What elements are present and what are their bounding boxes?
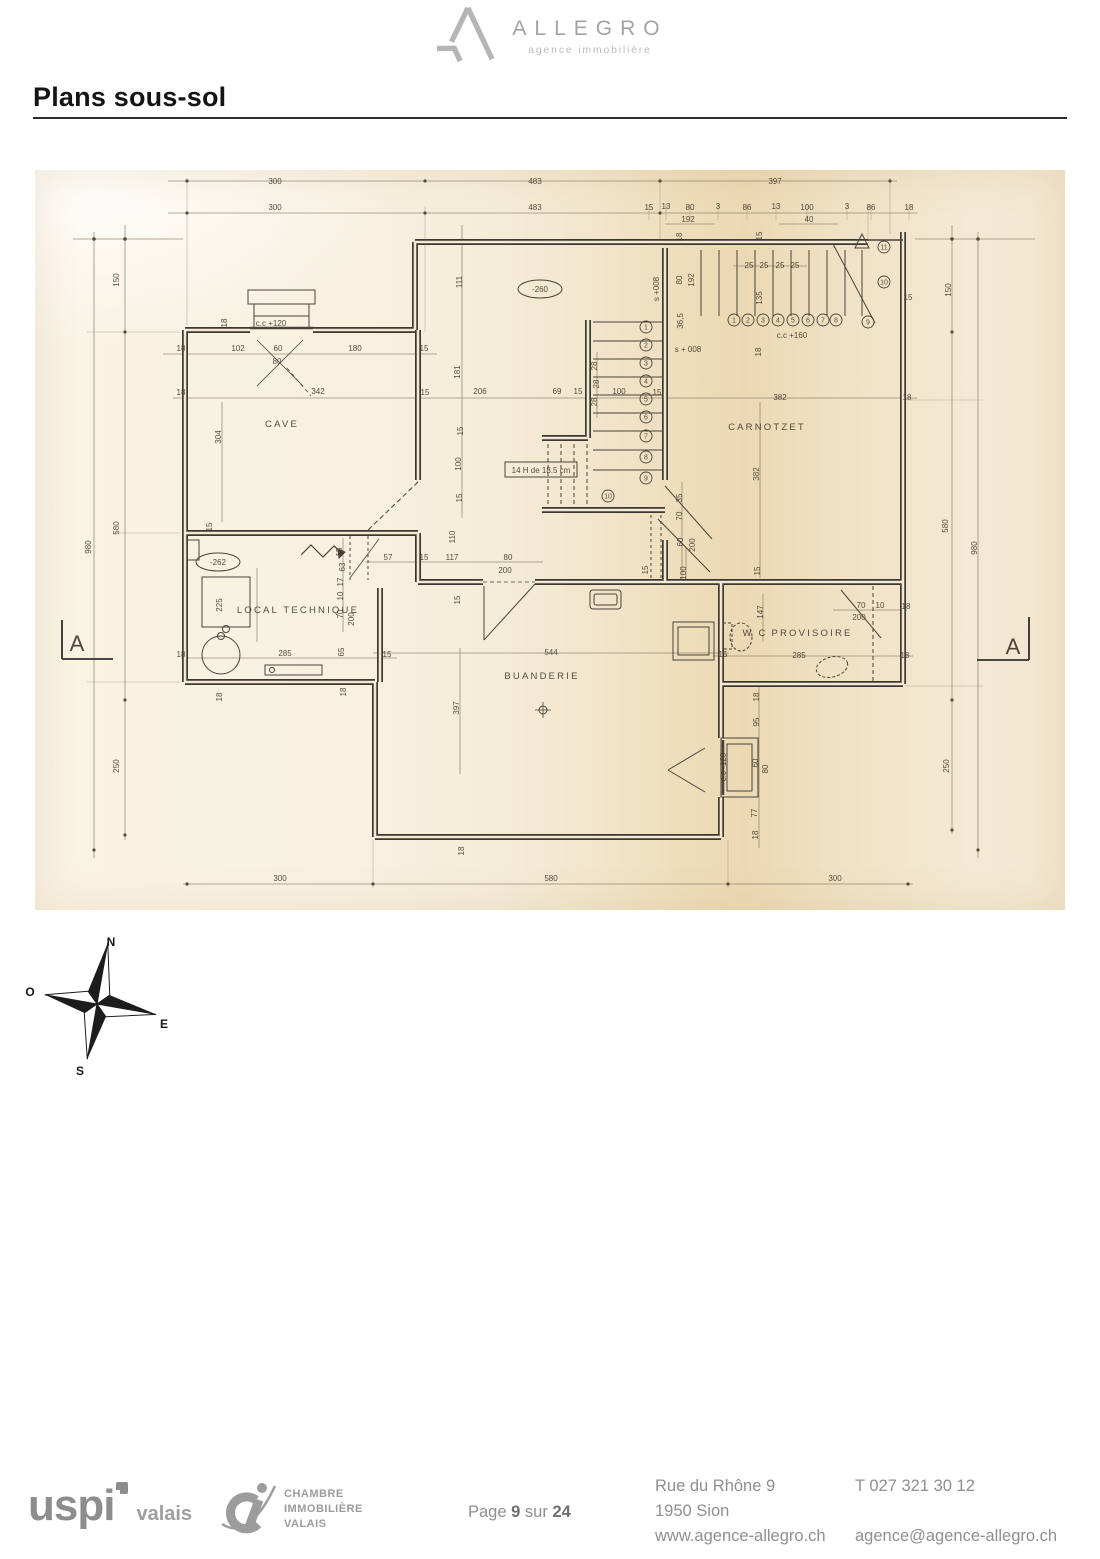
dimension-label: 100 xyxy=(800,203,814,212)
dimension-label: 285 xyxy=(278,649,292,658)
dimension-label: 10 xyxy=(336,591,345,600)
level-label: -262 xyxy=(210,558,227,567)
dimension-label: 80 xyxy=(686,203,695,212)
dimension-label: 15 xyxy=(456,426,465,435)
dimension-label: 100 xyxy=(679,566,688,580)
address-line: 1950 Sion xyxy=(655,1499,826,1524)
dimension-label: 28 xyxy=(590,361,599,370)
compass-rose: N E S O xyxy=(22,932,172,1082)
dimension-label: 15 xyxy=(653,388,662,397)
dimension-label: 15 xyxy=(641,565,650,574)
website-link[interactable]: www.agence-allegro.ch xyxy=(655,1524,826,1549)
room-label: CAVE xyxy=(265,419,299,430)
room-label: LOCAL TECHNIQUE xyxy=(237,605,359,616)
step-number: 2 xyxy=(644,343,648,350)
dimension-label: 80 xyxy=(504,553,513,562)
dimension-label: 18 xyxy=(339,687,348,696)
floor-plan: 3004833973004831513803861310038618192401… xyxy=(35,170,1065,910)
dimension-label: 100 xyxy=(454,457,463,471)
dimension-label: 342 xyxy=(311,387,325,396)
dimension-label: s + 008 xyxy=(675,345,702,354)
section-marker: A xyxy=(70,631,85,656)
dimension-label: 18 xyxy=(457,846,466,855)
step-number: 6 xyxy=(644,415,648,422)
step-number: 10 xyxy=(604,494,612,501)
dimension-label: 18 xyxy=(752,692,761,701)
dimension-label: 18 xyxy=(215,692,224,701)
dimension-label: 15 xyxy=(904,293,913,302)
walls xyxy=(185,232,903,837)
compass-west-label: O xyxy=(25,985,34,999)
dimension-label: 580 xyxy=(941,519,950,533)
dimension-label: 35 xyxy=(675,493,684,502)
dimension-label: 15 xyxy=(755,231,764,240)
dimension-label: 15 xyxy=(753,566,762,575)
dimension-label: 102 xyxy=(231,344,245,353)
dimension-label: 250 xyxy=(112,759,121,773)
floor-plan-scan: 3004833973004831513803861310038618192401… xyxy=(35,170,1065,910)
dimension-label: 397 xyxy=(768,177,782,186)
dimension-label: 25 xyxy=(791,261,800,270)
dimension-label: 18 xyxy=(901,651,910,660)
dimension-label: 382 xyxy=(752,467,761,481)
dimension-label: 200 xyxy=(498,566,512,575)
dimension-label: 150 xyxy=(944,283,953,297)
section-marker: A xyxy=(1006,634,1021,659)
uspi-valais-logo: uspi valais xyxy=(28,1484,192,1528)
dimension-label: 25 xyxy=(760,261,769,270)
dimension-label: 28 xyxy=(590,397,599,406)
step-number: 8 xyxy=(644,455,648,462)
dimension-label: 483 xyxy=(528,203,542,212)
dimension-label: 18 xyxy=(220,318,229,327)
dimension-label: s +008 xyxy=(652,276,661,301)
dimension-label: 18 xyxy=(177,344,186,353)
level-label: -260 xyxy=(532,285,549,294)
dimension-label: c.c +120 xyxy=(256,319,287,328)
page-word: Page xyxy=(468,1503,507,1521)
dimension-label: 18 xyxy=(905,203,914,212)
step-number: 4 xyxy=(644,379,648,386)
step-number: 9 xyxy=(866,320,870,327)
uspi-wordmark: uspi xyxy=(28,1484,114,1528)
civ-ci-icon xyxy=(212,1478,276,1540)
page-indicator: Page 9 sur 24 xyxy=(468,1503,571,1522)
dimension-label: 3 xyxy=(716,202,721,211)
dimension-label: 580 xyxy=(112,521,121,535)
dimension-label: 80 xyxy=(761,764,770,773)
step-number: 1 xyxy=(644,325,648,332)
dimension-label: 15 xyxy=(574,387,583,396)
dimension-label: 80 xyxy=(675,275,684,284)
step-number: 4 xyxy=(776,318,780,325)
dimension-label: 57 xyxy=(384,553,393,562)
dimension-label: 117 xyxy=(446,553,459,562)
dimension-label: c.c -120 xyxy=(719,752,728,781)
step-number: 5 xyxy=(644,397,648,404)
page-word: sur xyxy=(525,1503,548,1521)
dimension-label: 18 xyxy=(177,650,186,659)
dimension-label: 192 xyxy=(687,273,696,287)
dimension-label: 13 xyxy=(772,202,781,211)
dimension-label: 28 xyxy=(592,379,601,388)
dimension-label: 70 xyxy=(857,601,866,610)
dimension-label: 980 xyxy=(970,541,979,555)
dimension-label: 15 xyxy=(420,344,429,353)
dimension-label: 135 xyxy=(755,291,764,305)
dimension-label: 60 xyxy=(676,537,685,546)
room-label: CARNOTZET xyxy=(728,422,806,433)
dimension-label: 18 xyxy=(751,830,760,839)
dimension-label: 18 xyxy=(675,232,684,241)
dimension-label: 544 xyxy=(544,648,558,657)
stair-note: 14 H de 18.5 cm xyxy=(512,466,571,475)
dimension-label: 3 xyxy=(845,202,850,211)
dimension-label: 70 xyxy=(675,511,684,520)
dimension-label: 150 xyxy=(112,273,121,287)
room-label: W C xyxy=(742,628,767,639)
step-number: 8 xyxy=(834,318,838,325)
dimension-label: 147 xyxy=(756,605,765,619)
dimension-label: 15 xyxy=(453,595,462,604)
dimension-label: 382 xyxy=(773,393,787,402)
dimension-label: 60 xyxy=(751,758,760,767)
address-line: Rue du Rhône 9 xyxy=(655,1474,826,1499)
civ-text: CHAMBRE IMMOBILIÈRE VALAIS xyxy=(284,1487,363,1532)
dimension-label: 15 xyxy=(383,650,392,659)
dimension-label: 15 xyxy=(455,493,464,502)
phone-number: T 027 321 30 12 xyxy=(855,1474,1057,1499)
step-number: 7 xyxy=(644,434,648,441)
dimension-label: 17 xyxy=(336,577,345,586)
compass-south-label: S xyxy=(76,1064,84,1078)
address-block: Rue du Rhône 9 1950 Sion www.agence-alle… xyxy=(655,1474,826,1549)
step-number: 1 xyxy=(732,318,736,325)
dimension-label: 192 xyxy=(681,215,695,224)
dimension-label: 285 xyxy=(792,651,806,660)
dimension-label: 18 xyxy=(754,347,763,356)
dimension-label: 25 xyxy=(776,261,785,270)
step-number: 3 xyxy=(761,318,765,325)
step-number: 6 xyxy=(806,318,810,325)
dimension-label: 80 xyxy=(273,357,282,366)
dimension-label: 18 xyxy=(177,388,186,397)
dimension-label: 69 xyxy=(553,387,562,396)
dimension-label: 86 xyxy=(743,203,752,212)
dimension-label: 15 xyxy=(205,522,214,531)
dimension-label: 18 xyxy=(902,602,911,611)
dimension-label: 40 xyxy=(805,215,814,224)
plan-details xyxy=(62,234,1029,797)
dimension-label: 300 xyxy=(268,203,282,212)
step-number: 10 xyxy=(880,280,888,287)
room-label: BUANDERIE xyxy=(504,671,579,682)
title-rule xyxy=(33,117,1067,119)
dimension-label: 15 xyxy=(645,203,654,212)
dimension-label: 15 xyxy=(335,547,344,556)
dimension-label: 200 xyxy=(852,613,866,622)
dimension-label: 86 xyxy=(867,203,876,212)
dimension-label: 95 xyxy=(752,717,761,726)
brand-name: ALLEGRO xyxy=(512,17,667,41)
dimension-label: c.c +160 xyxy=(777,331,808,340)
dimension-label: 180 xyxy=(348,344,362,353)
step-number: 2 xyxy=(746,318,750,325)
civ-line: VALAIS xyxy=(284,1517,363,1532)
page-number: 9 xyxy=(511,1503,520,1521)
dimension-label: 15 xyxy=(421,388,430,397)
brand-subtitle: agence immobilière xyxy=(528,44,651,56)
allegro-a-icon xyxy=(432,4,500,62)
dimension-label: 18 xyxy=(903,393,912,402)
dimension-label: 60 xyxy=(274,344,283,353)
dimension-label: 65 xyxy=(337,647,346,656)
dimension-label: 980 xyxy=(84,540,93,554)
dimension-label: 77 xyxy=(750,808,759,817)
room-label: PROVISOIRE xyxy=(771,628,852,639)
compass-east-label: E xyxy=(160,1017,168,1031)
civ-line: IMMOBILIÈRE xyxy=(284,1502,363,1517)
dimension-label: 300 xyxy=(268,177,282,186)
dimension-label: 100 xyxy=(612,387,626,396)
dimension-label: 206 xyxy=(473,387,487,396)
dimension-label: 300 xyxy=(828,874,842,883)
uspi-region: valais xyxy=(136,1503,192,1526)
contact-block: T 027 321 30 12 agence@agence-allegro.ch xyxy=(855,1474,1057,1549)
chambre-immobiliere-logo: CHAMBRE IMMOBILIÈRE VALAIS xyxy=(212,1478,363,1540)
step-number: 5 xyxy=(791,318,795,325)
dimension-label: 13 xyxy=(662,202,671,211)
dimension-label: 300 xyxy=(273,874,287,883)
dimension-label: 181 xyxy=(453,365,462,379)
allegro-logo: ALLEGRO agence immobilière xyxy=(0,4,1100,62)
dimension-label: 397 xyxy=(452,701,461,715)
dimension-label: 25 xyxy=(745,261,754,270)
dimension-label: 200 xyxy=(688,538,697,552)
dimension-label: 10 xyxy=(876,601,885,610)
document-page: ALLEGRO agence immobilière Plans sous-so… xyxy=(0,0,1100,1559)
dimension-label: 63 xyxy=(338,562,347,571)
page-title: Plans sous-sol xyxy=(33,82,226,113)
dimension-label: 15 xyxy=(420,553,429,562)
step-number: 11 xyxy=(880,245,887,252)
dimension-label: 225 xyxy=(215,598,224,612)
dimension-label: 580 xyxy=(544,874,558,883)
dimension-label: 304 xyxy=(214,430,223,444)
dimension-label: 36,5 xyxy=(676,313,685,329)
page-total: 24 xyxy=(552,1503,570,1521)
step-number: 3 xyxy=(644,361,648,368)
dimension-label: 15 xyxy=(719,650,728,659)
compass-north-label: N xyxy=(107,935,116,949)
dimension-label: 110 xyxy=(448,530,457,543)
uspi-pin-icon xyxy=(116,1482,128,1494)
dimension-label: 483 xyxy=(528,177,542,186)
email-link[interactable]: agence@agence-allegro.ch xyxy=(855,1524,1057,1549)
dimension-label: 111 xyxy=(455,275,464,288)
step-number: 9 xyxy=(644,476,648,483)
dimension-label: 250 xyxy=(942,759,951,773)
step-number: 7 xyxy=(821,318,825,325)
civ-line: CHAMBRE xyxy=(284,1487,363,1502)
